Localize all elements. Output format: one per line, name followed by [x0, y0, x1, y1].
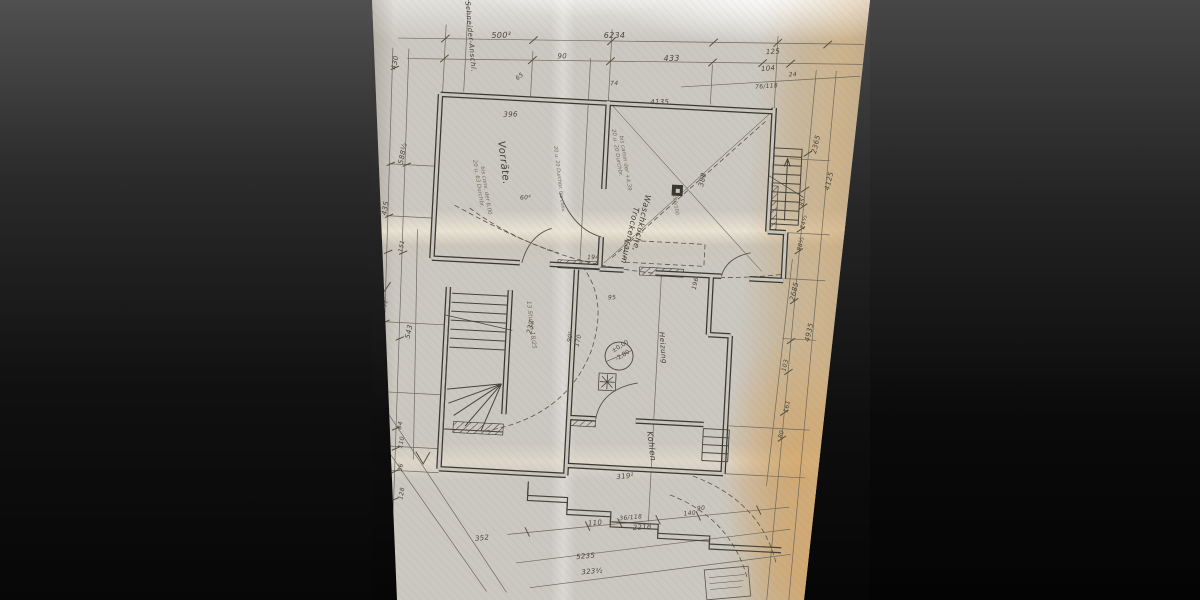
dim-95: 95: [608, 294, 616, 301]
dim-4125: 4125: [823, 171, 835, 192]
dim-543: 543: [404, 324, 415, 340]
dim-388: 388: [697, 172, 708, 188]
dim-90b: 90: [697, 505, 706, 513]
dim-76-118: 76/118: [755, 82, 778, 91]
room-kohlen: Kohlen: [645, 431, 658, 462]
dim-2365: 2365: [810, 134, 822, 155]
dim-84: 84: [396, 421, 404, 430]
dim-36-118: 36/118: [619, 513, 642, 522]
dim-319: 319²: [616, 472, 634, 481]
dim-170: 170: [574, 334, 584, 348]
dim-433: 433: [663, 54, 679, 63]
dim-367: 367½: [378, 300, 390, 322]
dim-885: 88½: [796, 236, 806, 252]
dim-435: 435: [380, 200, 391, 216]
room-vorraete: Vorräte.: [495, 140, 511, 185]
dim-194: 194: [587, 254, 599, 261]
plan-labels: 500³62349043365741251042476/118430588½43…: [370, 0, 843, 589]
dim-352: 352: [475, 534, 490, 543]
dim-196: 196: [691, 277, 701, 291]
note-box: [704, 566, 750, 600]
dim-6234: 6234: [604, 31, 626, 40]
dim-604: 60⁴: [520, 194, 532, 202]
drain-symbol: [598, 373, 616, 391]
floor-plan-drawing: 500³62349043365741251042476/118430588½43…: [370, 0, 872, 600]
dim-128: 128: [397, 487, 406, 500]
dim-65: 65: [514, 71, 525, 82]
letterbox-right: [870, 0, 1200, 600]
note-wall: 20 u. 20 Durchbr. bis conv.: [552, 146, 566, 213]
exterior-steps: [525, 481, 784, 552]
dim-74: 74: [610, 80, 618, 87]
dim-90: 90: [557, 52, 567, 60]
room-heizung: Heizung: [657, 332, 668, 365]
note-100: 100/100: [671, 194, 680, 215]
dim-125: 125: [766, 47, 781, 56]
dim-161: 161: [782, 400, 792, 414]
dim-5235: 5235: [576, 551, 596, 561]
letterbox-left: [0, 0, 372, 600]
dim-2685: 2685: [788, 281, 800, 302]
dim-4135: 4135: [650, 98, 669, 106]
dim-85: 85: [798, 197, 807, 207]
dim-151: 151: [397, 239, 406, 252]
dim-430: 430: [390, 55, 401, 71]
dim-500: 500³: [491, 31, 511, 40]
dim-396: 396: [503, 110, 518, 118]
dim-104: 104: [761, 64, 776, 73]
dim-138: 138: [378, 379, 387, 392]
dim-2218: 2218: [632, 522, 652, 532]
dim-24: 24: [789, 71, 798, 79]
dim-4935: 4935: [803, 322, 815, 343]
dim-120: 120: [377, 467, 386, 480]
dim-245: 24½: [799, 214, 809, 230]
dim-588: 588½: [397, 142, 409, 164]
dim-3235: 323½: [581, 567, 603, 577]
blueprint-paper: 500³62349043365741251042476/118430588½43…: [370, 0, 872, 600]
dim-103: 103: [781, 359, 791, 373]
photo-of-floor-plan: 500³62349043365741251042476/118430588½43…: [0, 0, 1200, 600]
dim-110b: 110: [588, 518, 603, 527]
dim-140: 140: [683, 510, 696, 518]
dim-80: 80: [777, 430, 786, 440]
